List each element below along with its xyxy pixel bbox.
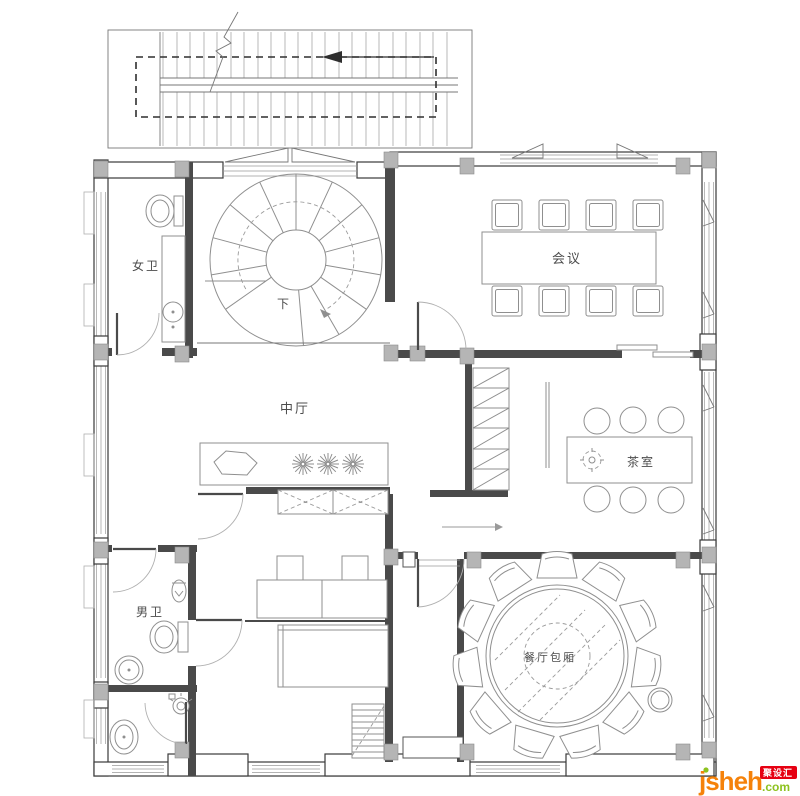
label-central-hall: 中厅 xyxy=(280,401,310,416)
chair xyxy=(342,556,368,580)
sliding-door xyxy=(617,345,693,357)
room-dining: 餐厅包厢 xyxy=(418,552,672,762)
label-stair-down: 下 xyxy=(277,297,291,311)
watermark-tld: .com xyxy=(762,780,790,794)
toilet xyxy=(150,621,188,653)
toilet xyxy=(146,195,183,227)
passage-arrow xyxy=(442,523,503,531)
door xyxy=(117,313,159,355)
label-tea-room: 茶室 xyxy=(627,454,655,469)
storage-cabinet xyxy=(278,490,388,514)
counter xyxy=(278,625,388,687)
label-men-restroom: 男卫 xyxy=(136,605,164,619)
closet-door xyxy=(196,620,242,666)
stair-direction-arrow xyxy=(322,51,434,63)
watermark-badge-text: 聚设汇 xyxy=(762,767,793,778)
urinal xyxy=(172,580,186,602)
main-entrance xyxy=(223,148,357,176)
room-women-restroom: 女卫 xyxy=(117,195,185,355)
planter-box xyxy=(200,443,388,485)
room-office xyxy=(196,494,388,758)
vanity-counter xyxy=(162,236,185,342)
door xyxy=(198,494,243,539)
chair xyxy=(277,556,303,580)
break-line xyxy=(210,12,238,92)
display-shelf xyxy=(473,368,509,490)
room-meeting: 会议 xyxy=(418,200,663,350)
door xyxy=(113,549,156,592)
desk xyxy=(322,580,387,618)
sink xyxy=(115,656,143,684)
floor-plan-drawing: 女卫 下 会议 xyxy=(0,0,800,796)
central-hall: 中厅 xyxy=(200,401,503,531)
exterior-stair-block xyxy=(108,12,472,148)
spiral-staircase: 下 xyxy=(197,174,390,346)
screen xyxy=(546,382,549,468)
label-dining-room: 餐厅包厢 xyxy=(524,650,576,664)
sink xyxy=(110,720,138,754)
window-frames xyxy=(84,192,94,738)
label-meeting-room: 会议 xyxy=(552,251,582,266)
floor-plan-page: 女卫 下 会议 xyxy=(0,0,800,796)
desk xyxy=(257,580,322,618)
watermark-leaf-dot xyxy=(703,767,708,772)
label-women-restroom: 女卫 xyxy=(132,258,160,273)
room-men-restroom: 男卫 xyxy=(113,549,188,684)
side-table xyxy=(648,688,672,712)
watermark: jsheh 聚设汇 .com xyxy=(698,766,797,796)
step-ladder xyxy=(352,704,384,758)
stair-dashed-outline xyxy=(136,57,436,117)
door xyxy=(418,302,466,350)
